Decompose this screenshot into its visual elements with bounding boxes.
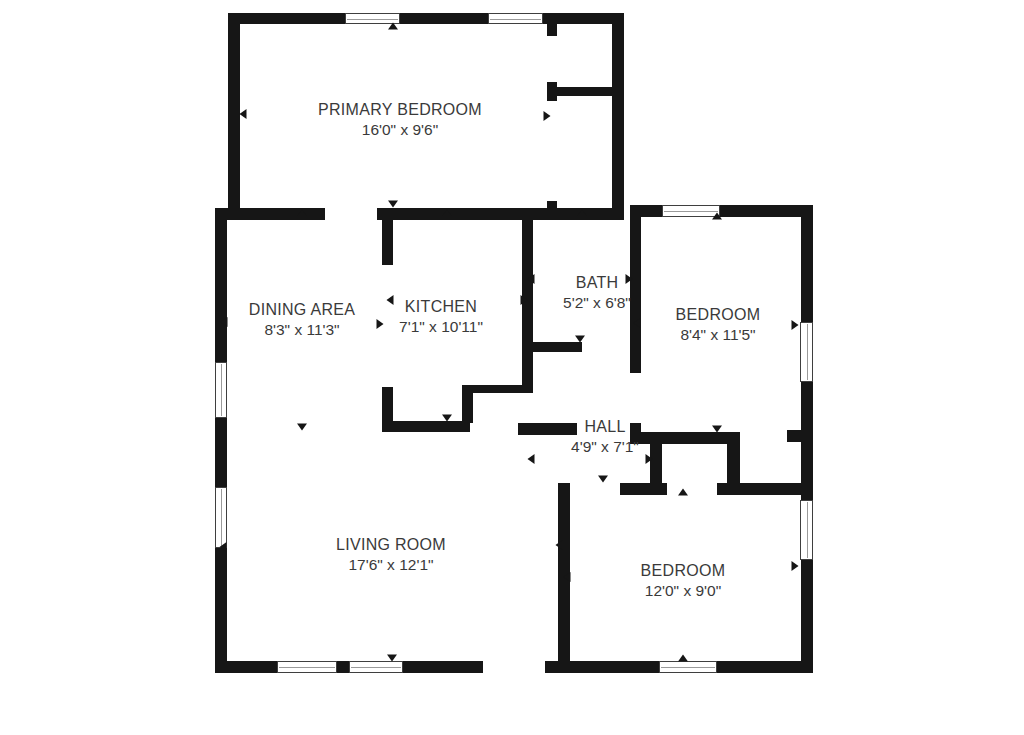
floorplan-canvas: PRIMARY BEDROOM16'0" x 9'6"DINING AREA8'… xyxy=(0,0,1024,735)
room-label-primary-bedroom: PRIMARY BEDROOM16'0" x 9'6" xyxy=(318,100,482,140)
room-labels-layer: PRIMARY BEDROOM16'0" x 9'6"DINING AREA8'… xyxy=(0,0,1024,735)
room-label-kitchen: KITCHEN7'1" x 10'11" xyxy=(399,297,483,337)
room-label-living-room: LIVING ROOM17'6" x 12'1" xyxy=(336,535,446,575)
room-label-hall: HALL4'9" x 7'1" xyxy=(571,417,639,457)
room-name: HALL xyxy=(571,417,639,436)
room-name: DINING AREA xyxy=(249,300,355,319)
room-name: LIVING ROOM xyxy=(336,535,446,554)
room-dimensions: 12'0" x 9'0" xyxy=(641,582,726,601)
room-dimensions: 4'9" x 7'1" xyxy=(571,438,639,457)
room-dimensions: 8'4" x 11'5" xyxy=(676,326,761,345)
room-dimensions: 8'3" x 11'3" xyxy=(249,321,355,340)
room-name: BATH xyxy=(563,273,631,292)
room-dimensions: 5'2" x 6'8" xyxy=(563,294,631,313)
room-label-bedroom-bottom: BEDROOM12'0" x 9'0" xyxy=(641,561,726,601)
room-name: KITCHEN xyxy=(399,297,483,316)
room-dimensions: 7'1" x 10'11" xyxy=(399,318,483,337)
room-label-bedroom-right: BEDROOM8'4" x 11'5" xyxy=(676,305,761,345)
room-label-dining-area: DINING AREA8'3" x 11'3" xyxy=(249,300,355,340)
room-dimensions: 17'6" x 12'1" xyxy=(336,556,446,575)
room-name: BEDROOM xyxy=(676,305,761,324)
room-name: PRIMARY BEDROOM xyxy=(318,100,482,119)
room-label-bath: BATH5'2" x 6'8" xyxy=(563,273,631,313)
room-name: BEDROOM xyxy=(641,561,726,580)
room-dimensions: 16'0" x 9'6" xyxy=(318,121,482,140)
